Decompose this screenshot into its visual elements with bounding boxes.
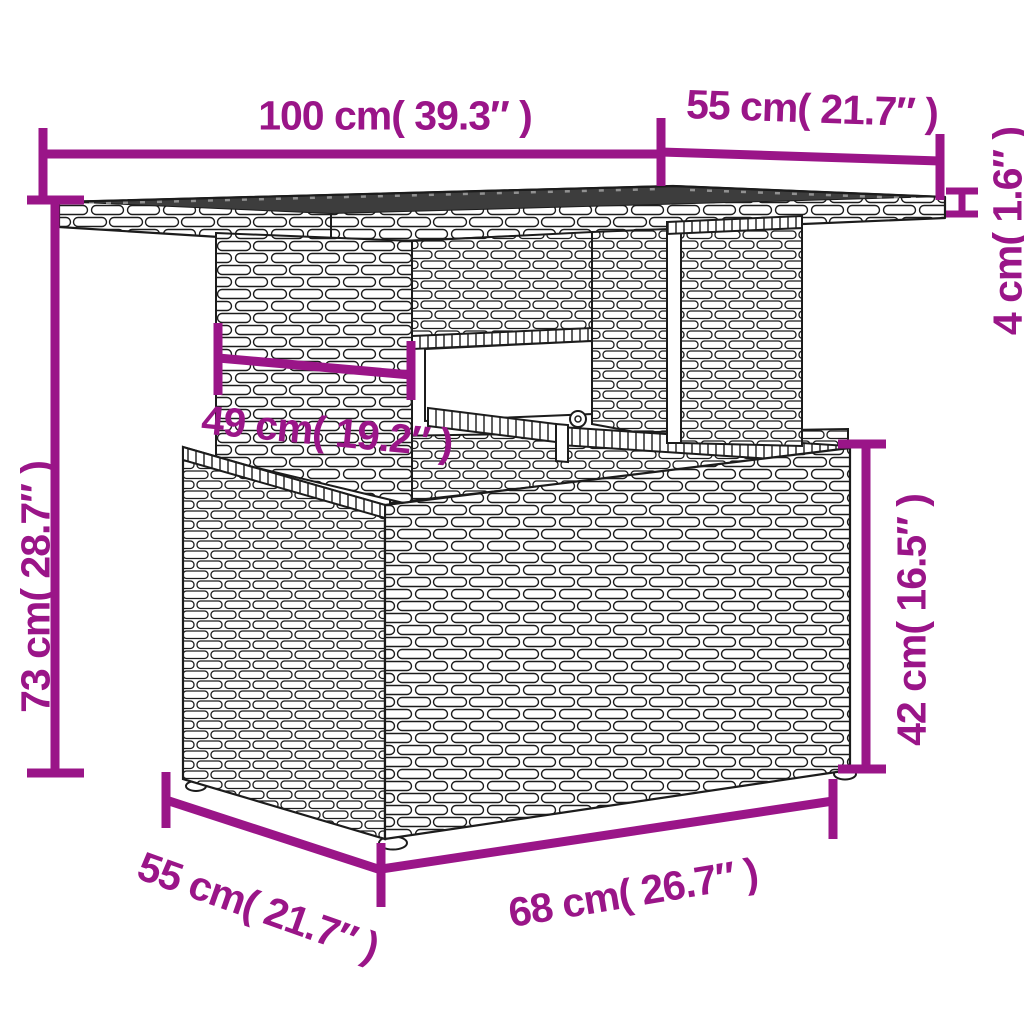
pedestal-side-face: [412, 232, 592, 338]
table-top: [59, 186, 945, 244]
right-column-side-face: [592, 229, 668, 438]
dimension-label-total-height: 73 cm( 28.7″ ): [16, 461, 57, 713]
base-box-front-face: [385, 448, 850, 839]
dimension-bracket-top-thickness: [946, 191, 978, 214]
dimension-label-top-thickness: 4 cm( 1.6″ ): [988, 127, 1024, 335]
joint-fitting: [570, 411, 586, 427]
base-box: [183, 447, 856, 850]
telescope-post: [667, 228, 681, 443]
dimension-diagram: 100 cm( 39.3″ ) 55 cm( 21.7″ ) 4 cm( 1.6…: [0, 0, 1024, 1024]
bar-support-post: [556, 424, 568, 462]
dimension-label-top-depth: 55 cm( 21.7″ ): [685, 84, 938, 134]
dimension-label-top-width: 100 cm( 39.3″ ): [258, 96, 532, 137]
dimension-label-base-height: 42 cm( 16.5″ ): [892, 494, 933, 746]
pedestal-opening: [425, 341, 592, 421]
right-column-front-face: [681, 217, 802, 446]
